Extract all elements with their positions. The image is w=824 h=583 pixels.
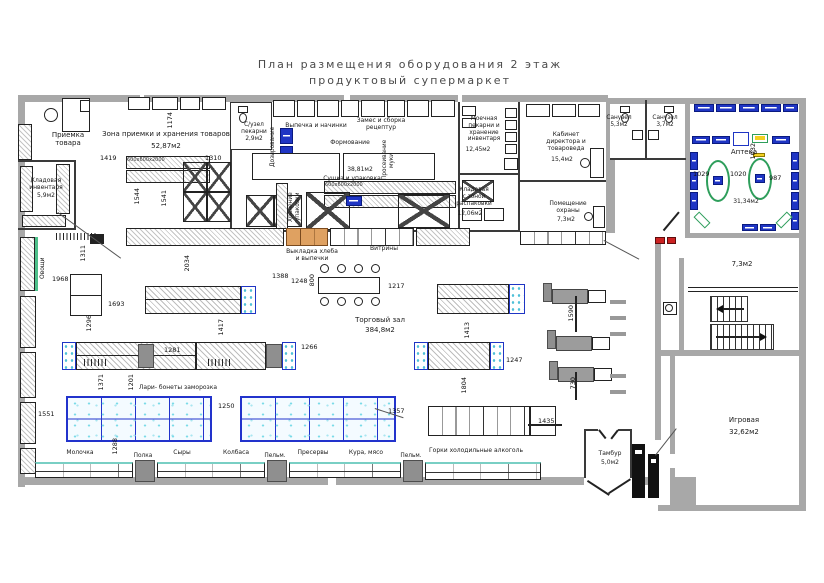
- room-label-washing: Моечная пекарни и хранение инвентаря: [452, 116, 516, 143]
- freezer-chest-block: [240, 396, 396, 442]
- cross-rack: [207, 192, 231, 222]
- dim: 1541: [160, 190, 168, 207]
- office-chair: [44, 108, 58, 122]
- sink-unit: [505, 144, 517, 154]
- dimension-line: [575, 296, 577, 332]
- queue-rail: [610, 332, 626, 336]
- partition: [18, 160, 76, 162]
- wall: [610, 98, 688, 104]
- room-label-pharmacy: Аптека: [720, 148, 768, 156]
- office-cabinet: [578, 104, 600, 117]
- equipment-block: [90, 234, 104, 244]
- case-label-shelf: Полка: [128, 453, 158, 460]
- fridge-endcap: [509, 284, 525, 314]
- freezer-chest-block: [66, 396, 212, 442]
- gondola-core: [755, 174, 765, 183]
- escalator-step: [650, 458, 657, 464]
- wall-counter: [126, 228, 284, 246]
- showcase: [520, 231, 606, 245]
- toilet-tank: [664, 106, 674, 113]
- dim: 1413: [463, 322, 471, 339]
- showcase: [330, 228, 414, 246]
- room-label-wc2: Санузел: [646, 115, 684, 122]
- office-cabinet: [552, 104, 576, 117]
- room-label-security: Помещение охраны: [536, 200, 600, 214]
- entrance-arrow: [608, 479, 631, 494]
- pharmacy-shelf: [761, 104, 781, 112]
- fixture-knob: [665, 304, 673, 312]
- gondola: [437, 284, 509, 314]
- cross-rack: [207, 162, 231, 192]
- pharmacy-shelf: [791, 172, 799, 190]
- bakery-oven: [341, 100, 359, 117]
- pharmacy-shelf: [690, 192, 698, 210]
- cross-rack: [183, 162, 207, 192]
- dim: 1419: [100, 154, 117, 162]
- wall-rack: [20, 402, 36, 444]
- dim: 1590: [567, 305, 575, 322]
- case-label-sausage: Колбаса: [214, 449, 258, 456]
- arrow-head-left: [712, 305, 723, 313]
- partition: [74, 160, 76, 230]
- bakery-oven: [317, 100, 339, 117]
- leader-line: [604, 240, 640, 260]
- zone-area-drying: 38,81м2: [340, 166, 380, 173]
- shelf-comb: [208, 359, 230, 366]
- packing-machine: [346, 196, 362, 206]
- tambour-wall: [584, 430, 586, 478]
- wall: [799, 98, 806, 510]
- cafe-table: [318, 277, 380, 294]
- wall-counter: [416, 228, 470, 246]
- yellow-marker: [755, 136, 765, 140]
- pharmacy-shelf: [760, 224, 776, 231]
- room-area-storage-zone: 52,87м2: [116, 142, 216, 150]
- wall: [670, 356, 675, 454]
- room-label-sales-hall: Торговый зал: [334, 316, 426, 324]
- office-cabinet: [526, 104, 550, 117]
- cross-rack: [183, 192, 207, 222]
- dim: 1310: [205, 154, 222, 162]
- wall-rack: [20, 237, 35, 291]
- inventory-rack: [22, 215, 66, 227]
- case-label-pelmeni: Пельм.: [260, 453, 290, 460]
- column: [266, 344, 282, 368]
- dim: 1250: [218, 402, 235, 410]
- room-area-unpack: 12,06м2: [448, 211, 492, 218]
- partition: [645, 100, 647, 158]
- fire-extinguisher: [655, 237, 665, 244]
- refrigerated-gondola: [425, 462, 541, 480]
- dim: 987: [769, 174, 781, 182]
- room-area-vestibule: 5,0м2: [592, 459, 628, 466]
- wall-rack: [20, 448, 36, 474]
- fridge-endcap: [282, 342, 296, 370]
- dim: 1371: [97, 374, 105, 391]
- refrigerated-case: [289, 462, 401, 478]
- bakery-oven: [361, 100, 385, 117]
- dim: 2034: [183, 255, 191, 272]
- gondola-core: [713, 176, 723, 185]
- checkout-stub: [547, 330, 556, 349]
- checkout-counter: [556, 336, 592, 351]
- pharmacy-cash-desk: [733, 132, 749, 146]
- equipment-box: [152, 97, 178, 110]
- room-area-inventory: 5,9м2: [24, 192, 68, 199]
- fire-extinguisher: [667, 237, 676, 244]
- stool: [337, 264, 346, 273]
- wall: [685, 233, 806, 238]
- monitor: [80, 100, 90, 112]
- dim: 1247: [506, 356, 523, 364]
- dim: 1266: [301, 343, 318, 351]
- checkout-end: [592, 337, 610, 350]
- equipment-box: [180, 97, 200, 110]
- sink: [632, 130, 643, 140]
- case-label-alcohol-gondolas: Горки холодильные алкоголь: [418, 447, 534, 454]
- zone-label-vegetables: Овощи: [39, 246, 46, 290]
- plan-title-line1: План размещения оборудования 2 этаж: [210, 58, 610, 71]
- zone-label-kneading: Замес и сборка рецептур: [350, 117, 412, 131]
- partition: [520, 180, 606, 182]
- dim: 1217: [388, 282, 405, 290]
- room-label-vestibule: Тамбур: [590, 450, 630, 457]
- door-leaf: [598, 430, 606, 440]
- packaging-rack: [276, 183, 288, 229]
- room-area-wc1: 5,3м2: [604, 122, 634, 129]
- dim: 1311: [79, 245, 87, 262]
- column: [267, 460, 287, 482]
- dim: 730: [569, 377, 577, 389]
- dim: 1417: [217, 319, 225, 336]
- dim: 1388: [272, 272, 289, 280]
- case-label-dairy: Молочка: [58, 449, 102, 456]
- bakery-oven: [387, 100, 405, 117]
- door-leaf: [663, 212, 680, 231]
- column: [138, 344, 154, 368]
- vegetable-rack-edge: [35, 237, 38, 291]
- equipment-box: [202, 97, 226, 110]
- room-area-wc2: 3,7м2: [650, 122, 680, 129]
- stool: [320, 297, 329, 306]
- zone-label-forming: Формование: [324, 139, 376, 146]
- refrigerated-case: [35, 462, 133, 478]
- wall-rack: [18, 124, 32, 160]
- room-label-unpack: Кладовая с зоной распаковки: [440, 187, 508, 207]
- room-label-storage-zone: Зона приемки и хранения товаров: [96, 130, 236, 138]
- room-label-playroom: Игровая: [716, 416, 772, 424]
- partition: [18, 228, 76, 230]
- fridge-endcap: [62, 342, 76, 370]
- pharmacy-shelf: [772, 136, 790, 144]
- dim: 1174: [166, 112, 174, 129]
- gondola-divider: [76, 355, 196, 356]
- case-label-poultry-meat: Кура, мясо: [340, 449, 392, 456]
- pharmacy-shelf: [716, 104, 736, 112]
- partition: [610, 158, 686, 160]
- pharmacy-corner-shelf: [776, 212, 793, 229]
- dim: 1020: [730, 170, 747, 178]
- fridge-endcap: [490, 342, 504, 370]
- checkout-stub: [549, 361, 558, 380]
- dosing-unit: [280, 128, 293, 144]
- checkout-counter: [552, 289, 588, 304]
- washer: [462, 106, 476, 116]
- sink: [648, 130, 659, 140]
- dim: 1029: [693, 170, 710, 178]
- dim: 800: [308, 274, 316, 286]
- bakery-oven: [273, 100, 295, 117]
- bakery-oven: [407, 100, 429, 117]
- case-label-preserves: Пресервы: [290, 449, 336, 456]
- tambour-wall: [584, 429, 598, 431]
- room-area-security: 7,3м2: [544, 216, 588, 223]
- fridge-endcap: [414, 342, 428, 370]
- partition: [518, 102, 520, 232]
- stove: [504, 158, 518, 170]
- wall: [610, 160, 615, 233]
- stool: [371, 264, 380, 273]
- stool: [320, 264, 329, 273]
- island-divider: [70, 295, 102, 296]
- dim: 1201: [127, 374, 135, 391]
- room-area-stairs: 7,3м2: [722, 260, 762, 268]
- plan-title-line2: продуктовый супермаркет: [210, 74, 610, 87]
- equipment-box: [128, 97, 150, 110]
- dim: 1693: [108, 300, 125, 308]
- pharmacy-shelf: [791, 192, 799, 210]
- dim: 1032: [749, 143, 757, 160]
- dim: 1248: [291, 277, 308, 285]
- refrigerated-case: [157, 462, 265, 478]
- wall-rack: [20, 296, 36, 348]
- gondola-divider: [437, 298, 509, 299]
- gondola: [196, 342, 266, 370]
- partition: [458, 173, 520, 175]
- queue-rail: [610, 300, 626, 304]
- pharmacy-shelf: [791, 152, 799, 170]
- room-area-washing: 12,45м2: [456, 147, 500, 154]
- room-area-sales-hall: 384,8м2: [344, 326, 416, 334]
- pharmacy-shelf: [694, 104, 714, 112]
- room-label-inventory: Кладовая инвентаря: [18, 177, 74, 191]
- stool: [337, 297, 346, 306]
- dim: 1551: [38, 410, 55, 418]
- case-label-cheese: Сыры: [166, 449, 198, 456]
- stair-arrow: [716, 336, 762, 338]
- entrance-arrow: [587, 480, 610, 495]
- stool: [354, 264, 363, 273]
- gondola-shelf: [428, 406, 530, 436]
- toilet-tank: [620, 106, 630, 113]
- fridge-endcap: [241, 286, 256, 314]
- pharmacy-shelf: [791, 212, 799, 230]
- checkout-stub: [543, 283, 552, 302]
- shelf-comb: [84, 359, 106, 366]
- pharmacy-shelf: [712, 136, 730, 144]
- dim: 1435: [538, 417, 555, 425]
- column: [135, 460, 155, 482]
- pharmacy-corner-shelf: [694, 212, 711, 229]
- zone-label-pack-storage: Хранение упаковки: [288, 182, 302, 232]
- zone-label-bread: Выкладка хлеба и выпечки: [280, 248, 344, 262]
- zone-label-dosing: Дозирование: [270, 124, 277, 170]
- packing-table: [306, 192, 350, 230]
- room-label-wc1: Санузел: [600, 115, 638, 122]
- dim: 1281: [164, 346, 181, 354]
- zone-label-sifting: Просеивание муки: [382, 134, 396, 186]
- stair-landing: [688, 287, 798, 288]
- wall-rack: [20, 352, 36, 398]
- wall: [462, 95, 608, 102]
- stool: [371, 297, 380, 306]
- bakery-oven: [431, 100, 455, 117]
- zone-label-showcases: Витрины: [362, 245, 406, 252]
- wall: [670, 477, 696, 507]
- zone-label-baking: Выпечка и начинки: [280, 122, 352, 129]
- dim: 1968: [52, 275, 69, 283]
- dim: 1288: [111, 438, 119, 455]
- escalator-step: [634, 449, 643, 455]
- packing-table: [246, 195, 274, 227]
- dim: 1804: [460, 377, 468, 394]
- room-label-office: Кабинет директора и товароведа: [530, 131, 602, 152]
- zone-label-drying: Сушка и упаковка: [314, 175, 390, 182]
- dim: 1544: [133, 188, 141, 205]
- room-area-bakery-wc: 2,9м2: [240, 136, 268, 143]
- arrow-head-right: [760, 333, 771, 341]
- queue-rail: [610, 316, 626, 320]
- zone-label-freezers: Лари- бонеты заморозка: [120, 384, 236, 391]
- door-leaf: [610, 430, 618, 440]
- bakery-oven: [297, 100, 315, 117]
- room-area-office: 15,4м2: [540, 156, 584, 163]
- gondola: [145, 286, 241, 314]
- stair-landing: [688, 291, 798, 292]
- pharmacy-shelf: [783, 104, 798, 112]
- dim: 1296: [85, 315, 93, 332]
- gondola-divider: [145, 299, 241, 300]
- stool: [354, 297, 363, 306]
- room-label-bakery-wc: С/узел пекарни: [236, 122, 272, 136]
- pharmacy-shelf: [692, 136, 710, 144]
- gondola: [428, 342, 490, 370]
- queue-rail: [610, 390, 626, 394]
- pharmacy-shelf: [742, 224, 758, 231]
- queue-rail: [610, 374, 626, 378]
- room-label-receiving: Приемка товара: [40, 131, 96, 148]
- pharmacy-shelf: [690, 152, 698, 170]
- wall: [679, 258, 684, 353]
- toilet-tank: [238, 106, 248, 113]
- room-area-pharmacy: 31,34м2: [718, 198, 774, 205]
- office-desk: [590, 148, 604, 178]
- checkout-end: [588, 290, 606, 303]
- wall: [655, 240, 661, 440]
- pharmacy-shelf: [739, 104, 759, 112]
- floor-plan: План размещения оборудования 2 этаж прод…: [0, 0, 824, 583]
- room-area-playroom: 32,62м2: [718, 428, 770, 436]
- column: [403, 460, 423, 482]
